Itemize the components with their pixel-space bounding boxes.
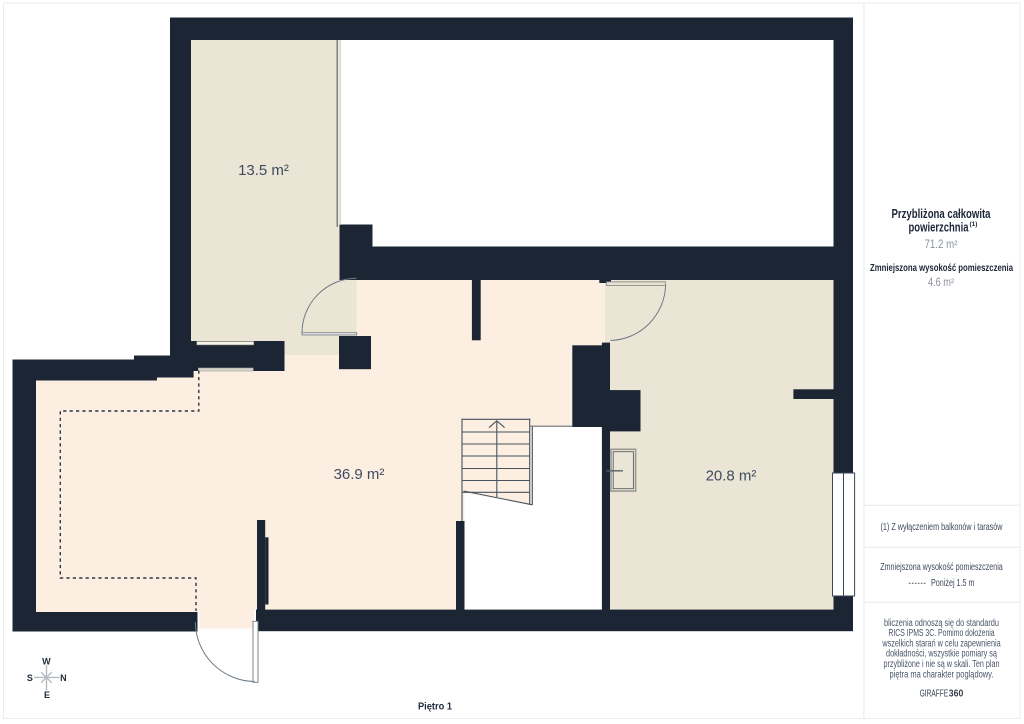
svg-text:4.6 m²: 4.6 m² bbox=[928, 277, 954, 289]
svg-text:powierzchnia: powierzchnia bbox=[909, 221, 970, 235]
svg-text:GIRAFFE: GIRAFFE bbox=[920, 689, 949, 700]
svg-text:13.5 m²: 13.5 m² bbox=[238, 162, 289, 179]
svg-text:N: N bbox=[60, 673, 67, 683]
svg-text:(1) Z wyłączeniem balkonów i t: (1) Z wyłączeniem balkonów i tarasów bbox=[881, 521, 1003, 533]
svg-text:Piętro 1: Piętro 1 bbox=[418, 700, 452, 712]
svg-text:71.2 m²: 71.2 m² bbox=[925, 239, 958, 251]
svg-text:Zmniejszona wysokość pomieszcz: Zmniejszona wysokość pomieszczenia bbox=[880, 561, 1003, 573]
svg-text:20.8 m²: 20.8 m² bbox=[706, 468, 757, 485]
svg-text:36.9 m²: 36.9 m² bbox=[334, 466, 385, 483]
svg-text:360: 360 bbox=[949, 689, 964, 700]
svg-text:(1): (1) bbox=[970, 221, 978, 228]
svg-text:W: W bbox=[42, 657, 51, 667]
svg-text:Zmniejszona wysokość pomieszcz: Zmniejszona wysokość pomieszczenia bbox=[870, 262, 1013, 274]
svg-text:piętra ma charakter poglądowy.: piętra ma charakter poglądowy. bbox=[890, 669, 994, 680]
svg-text:S: S bbox=[27, 673, 33, 683]
svg-text:E: E bbox=[44, 690, 50, 700]
svg-text:Poniżej 1.5 m: Poniżej 1.5 m bbox=[931, 577, 975, 589]
svg-text:Przybliżona całkowita: Przybliżona całkowita bbox=[892, 207, 992, 221]
